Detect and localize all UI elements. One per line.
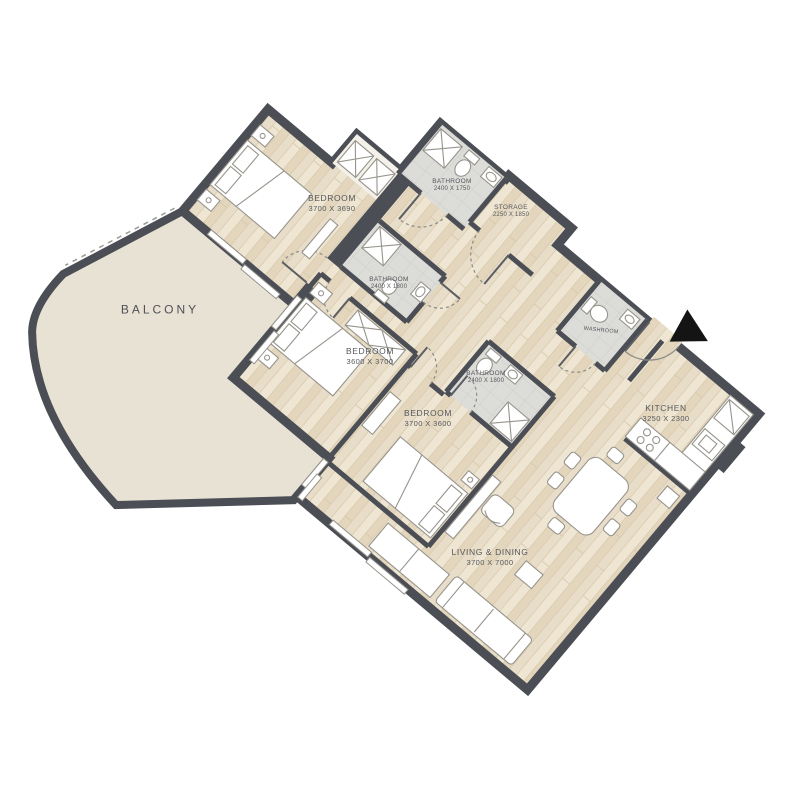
floor-plan-drawing [0,0,800,800]
floor-plan-page: BEDROOM 3700 X 3690 BATHROOM 2400 X 1750… [0,0,800,800]
